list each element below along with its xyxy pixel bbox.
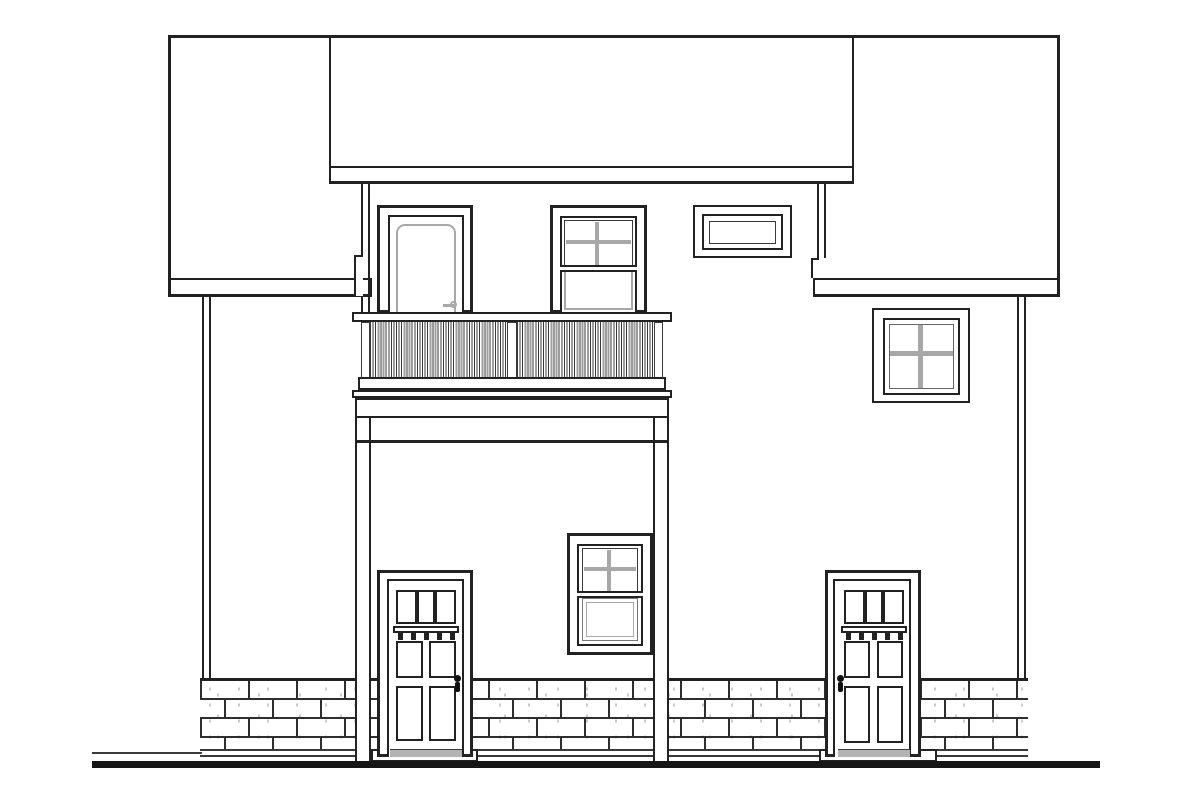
wing-window-group <box>0 0 1200 800</box>
elevation-drawing-canvas <box>0 0 1200 800</box>
wing-window-muntin-horizontal <box>890 351 953 356</box>
ground-line <box>92 761 1100 768</box>
wing-window-muntin-vertical <box>918 325 923 388</box>
